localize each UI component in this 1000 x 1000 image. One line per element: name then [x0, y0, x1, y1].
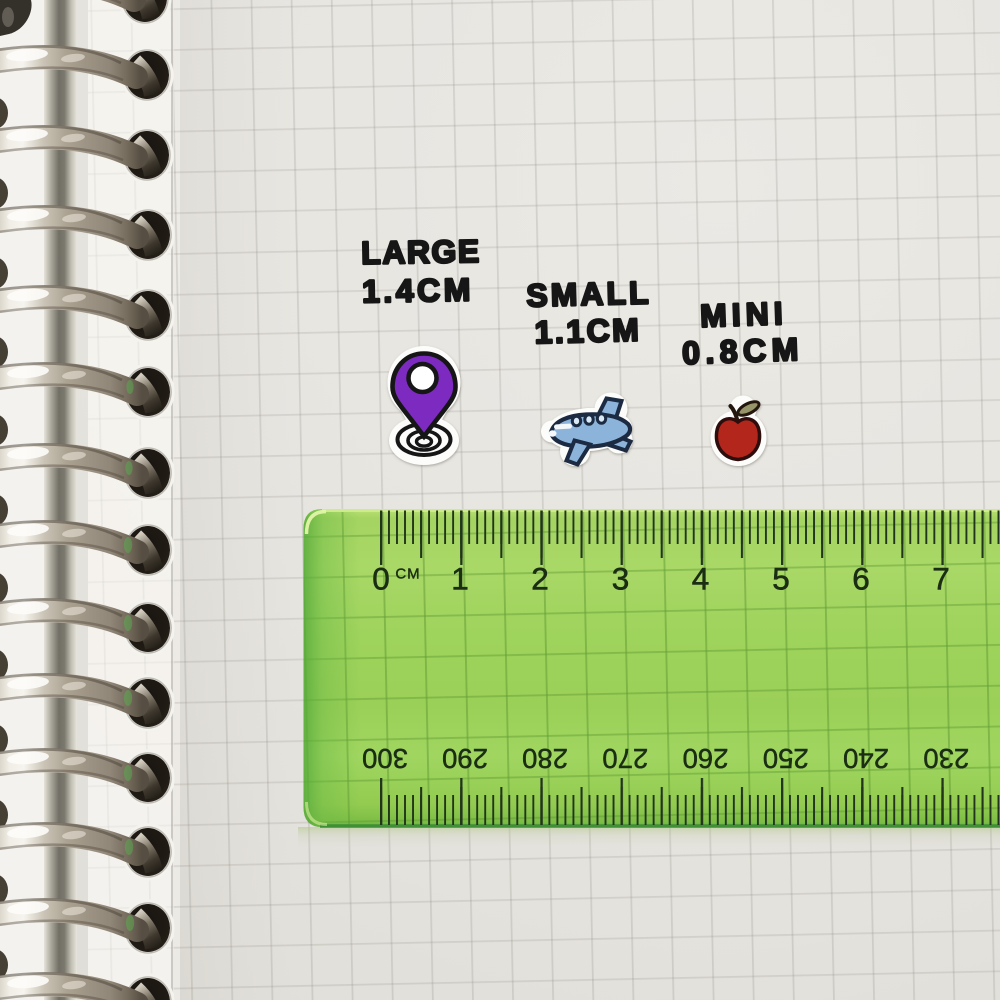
svg-text:5: 5: [772, 561, 790, 597]
svg-text:270: 270: [602, 743, 648, 774]
svg-text:240: 240: [843, 743, 889, 774]
svg-text:280: 280: [522, 743, 568, 774]
svg-text:0: 0: [372, 561, 390, 597]
svg-text:SMALL: SMALL: [526, 274, 652, 313]
svg-text:CM: CM: [395, 566, 420, 583]
svg-text:250: 250: [763, 743, 809, 774]
svg-text:260: 260: [683, 743, 729, 774]
svg-text:1: 1: [451, 561, 469, 597]
svg-text:0.8CM: 0.8CM: [681, 331, 804, 371]
svg-text:MINI: MINI: [700, 295, 789, 334]
svg-text:LARGE: LARGE: [361, 233, 481, 271]
svg-text:1.4CM: 1.4CM: [362, 272, 474, 310]
svg-text:6: 6: [852, 561, 870, 597]
svg-text:4: 4: [692, 561, 710, 597]
svg-text:1.1CM: 1.1CM: [534, 312, 642, 351]
svg-text:230: 230: [923, 743, 969, 774]
svg-text:290: 290: [442, 743, 488, 774]
svg-text:7: 7: [932, 561, 950, 597]
svg-text:3: 3: [612, 561, 630, 597]
svg-text:300: 300: [362, 743, 408, 774]
svg-text:2: 2: [531, 561, 549, 597]
